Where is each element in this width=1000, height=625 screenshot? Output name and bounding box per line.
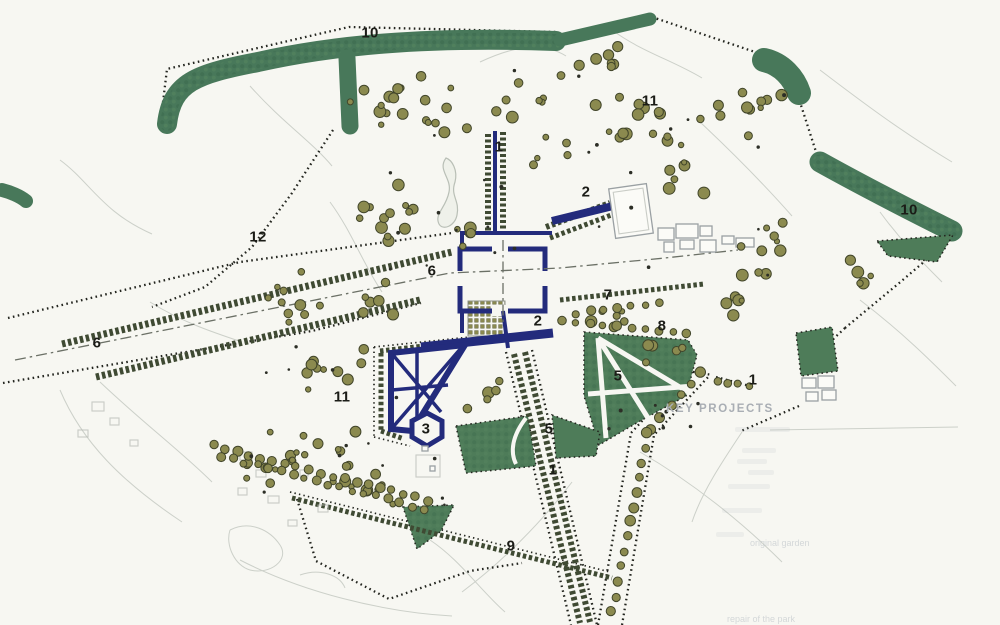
legend-faint-text: original garden bbox=[750, 538, 810, 548]
map-label-7: 7 bbox=[604, 288, 613, 303]
map-label-5: 5 bbox=[614, 369, 623, 384]
map-label-8: 8 bbox=[658, 319, 667, 334]
farm-buildings bbox=[802, 376, 836, 401]
map-label-10: 10 bbox=[361, 26, 378, 41]
map-label-6: 6 bbox=[93, 336, 102, 351]
serpentine-pond bbox=[438, 158, 458, 227]
map-label-11: 11 bbox=[334, 390, 350, 405]
map-label-2: 2 bbox=[582, 185, 591, 200]
walled-garden bbox=[609, 184, 654, 239]
legend-faint-text: repair of the park bbox=[727, 614, 795, 624]
map-label-9: 9 bbox=[507, 539, 516, 554]
map-label-2: 2 bbox=[534, 314, 543, 329]
scanned-masterplan: 10111210126728651113519 KEY PROJECTS ori… bbox=[0, 0, 1000, 625]
map-label-3: 3 bbox=[422, 422, 431, 437]
map-label-1: 1 bbox=[549, 463, 558, 478]
map-label-11: 11 bbox=[642, 94, 658, 109]
map-label-5: 5 bbox=[545, 422, 554, 437]
lodge-enclosure bbox=[416, 446, 440, 477]
map-label-1: 1 bbox=[749, 373, 758, 388]
map-label-1: 1 bbox=[495, 140, 504, 155]
map-label-10: 10 bbox=[900, 203, 917, 218]
map-label-12: 12 bbox=[249, 230, 266, 245]
masterplan-map bbox=[0, 0, 1000, 625]
legend-heading: KEY PROJECTS bbox=[666, 403, 774, 415]
map-label-6: 6 bbox=[428, 264, 437, 279]
